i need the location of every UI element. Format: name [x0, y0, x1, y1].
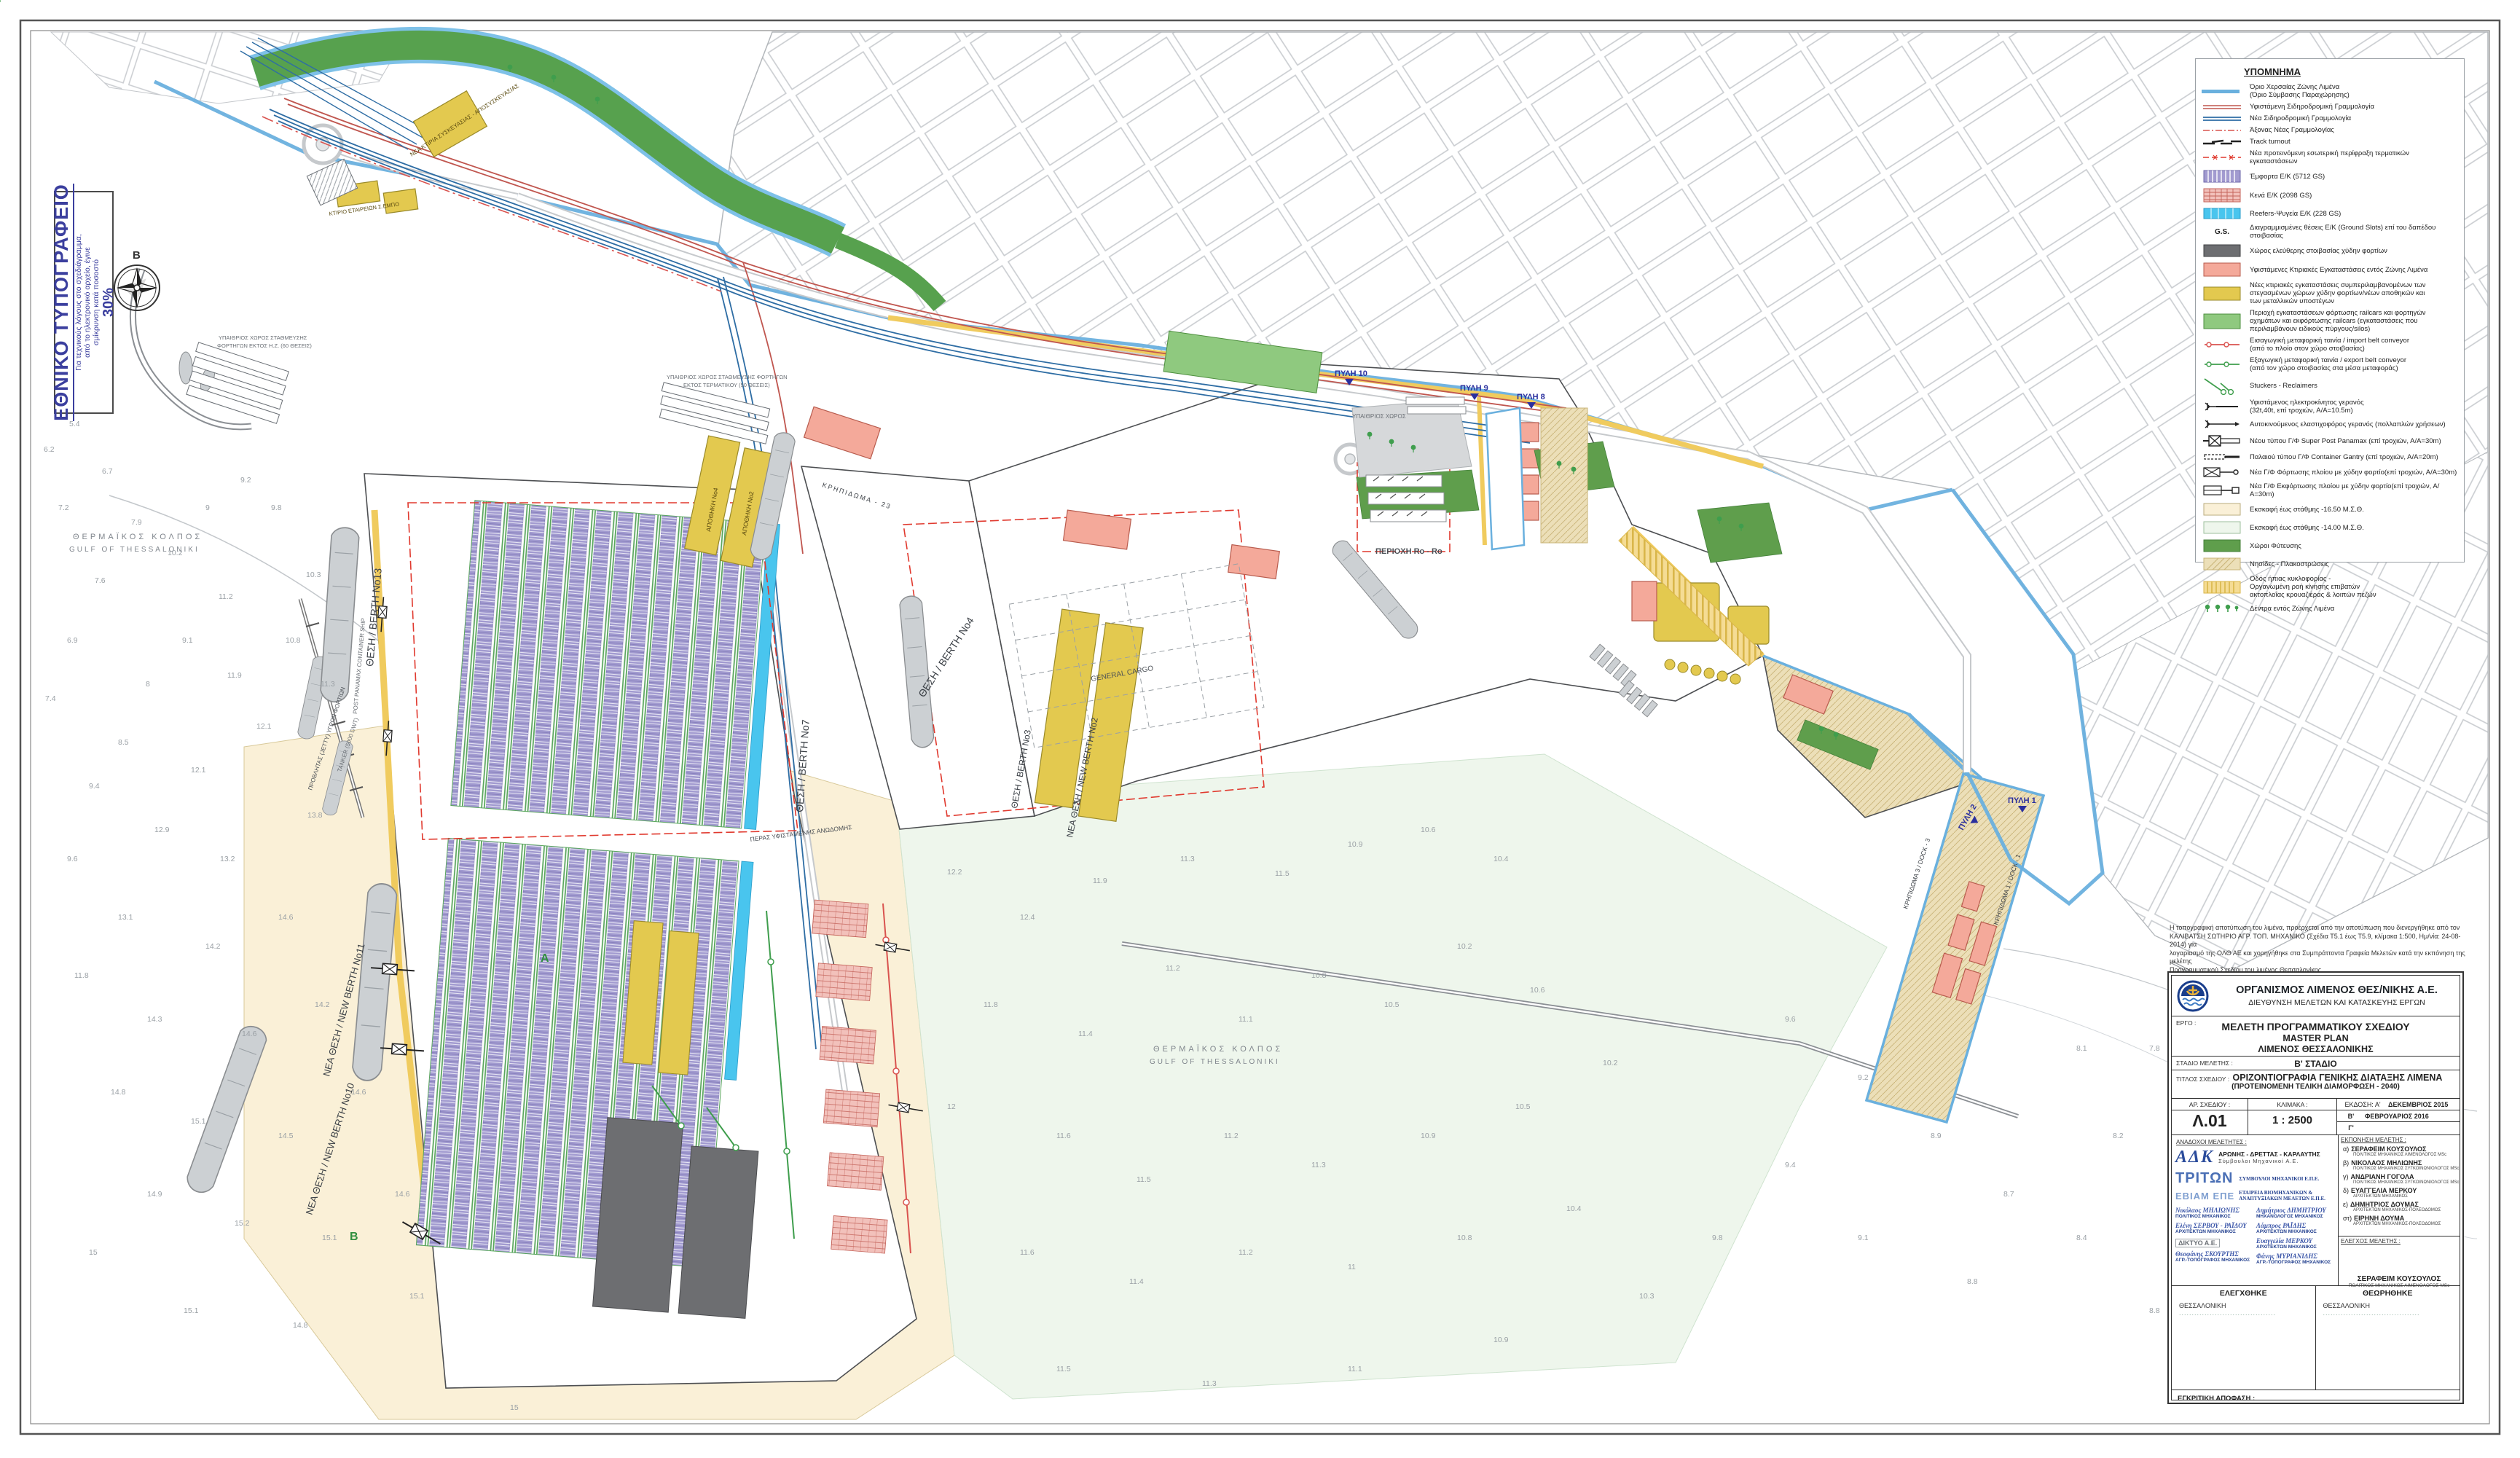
legend-item-label: Reefers-Ψυγεία Ε/Κ (228 GS) — [2250, 210, 2341, 218]
national-printing-office-note: ΕΘΝΙΚΟ ΤΥΠΟΓΡΑΦΕΙΟ Για τεχνικούς λόγους … — [54, 191, 114, 414]
depth-sounding: 5.4 — [69, 420, 80, 428]
drawing-title-line2: (ΠΡΟΤΕΙΝΟΜΕΝΗ ΤΕΛΙΚΗ ΔΙΑΜΟΡΦΩΣΗ - 2040) — [2172, 1083, 2460, 1091]
depth-sounding: 11.8 — [74, 971, 89, 980]
depth-sounding: 11.1 — [1239, 1015, 1253, 1024]
port-authority-logo — [2172, 980, 2214, 1012]
survey-note-line: ΚΑΛΙΒΑΤΣΗ ΣΩΤΗΡΙΟ ΑΓΡ. ΤΟΠ. ΜΗΧΑΝΙΚΟ (Σχ… — [2170, 933, 2467, 949]
area-label-open-yard: ΥΠΑΙΘΡΙΟΣ ΧΩΡΟΣ — [1352, 413, 1406, 420]
depth-sounding: 12.2 — [947, 868, 962, 877]
legend-item-label: Διαγραμμισμένες θέσεις Ε/Κ (Ground Slots… — [2250, 224, 2458, 240]
legend-swatch-ek_empty — [2202, 187, 2242, 203]
depth-sounding: 15 — [510, 1403, 519, 1412]
depth-sounding: 11.9 — [227, 671, 242, 680]
depth-sounding: 9.2 — [240, 476, 251, 485]
depth-sounding: 14.2 — [315, 1000, 330, 1009]
author-entry: β)ΝΙΚΟΛΑΟΣ ΜΗΛΙΩΝΗΣΠΟΛΙΤΙΚΟΣ ΜΗΧΑΝΙΚΟΣ Σ… — [2343, 1159, 2460, 1171]
depth-sounding: 15.1 — [322, 1234, 337, 1242]
depth-sounding: 8 — [146, 680, 150, 689]
check-cell: ΕΛΕΓΧΟΣ ΜΕΛΕΤΗΣ : ΣΕΡΑΦΕΙΜ ΚΟΥΣΟΥΛΟΣ ΠΟΛ… — [2339, 1236, 2460, 1285]
legend-swatch-exc1400 — [2202, 520, 2242, 535]
depth-sounding: 15.1 — [409, 1292, 425, 1301]
drawing-title-line1: ΟΡΙΖΟΝΤΙΟΓΡΑΦΙΑ ΓΕΝΙΚΗΣ ΔΙΑΤΑΞΗΣ ΛΙΜΕΝΑ — [2215, 1073, 2460, 1083]
section-marker-a: Α — [541, 952, 549, 965]
depth-sounding: 14.9 — [147, 1190, 162, 1199]
depth-sounding: 7.9 — [131, 518, 142, 527]
legend-item: Υφιστάμενες Κτιριακές Εγκαταστάσεις εντό… — [2202, 262, 2458, 278]
legend-item: Stuckers - Reclaimers — [2202, 376, 2458, 395]
legend-swatch-axis_new — [2202, 128, 2242, 133]
checker-role: ΠΟΛΙΤΙΚΟΣ ΜΗΧΑΝΙΚΟΣ ΛΙΜΕΝΟΛΟΓΟΣ MSc — [2339, 1283, 2460, 1288]
legend-swatch-bulk_load — [2202, 466, 2242, 479]
consultant-signature: Νικόλαος ΜΗΛΙΩΝΗΣΠΟΛΙΤΙΚΟΣ ΜΗΧΑΝΙΚΟΣ — [2175, 1207, 2255, 1219]
stage-label: ΣΤΑΔΙΟ ΜΕΛΕΤΗΣ : — [2176, 1059, 2233, 1067]
depth-sounding: 10.2 — [1457, 942, 1472, 951]
depth-sounding: 11 — [1348, 1263, 1356, 1271]
port-master-plan-map: Β ΘΕΡΜΑΪΚΟΣ ΚΟΛΠΟΣGULF OF THESSALONIKIΘΕ… — [0, 0, 2520, 1454]
legend-item-label: Εισαγωγική μεταφορική ταινία / import be… — [2250, 337, 2409, 353]
topographic-survey-note: Η τοπογραφική αποτύπωση του λιμένα, προέ… — [2170, 924, 2467, 974]
legend-swatch-gantry_old — [2202, 452, 2242, 462]
checker-name: ΣΕΡΑΦΕΙΜ ΚΟΥΣΟΥΛΟΣ — [2339, 1275, 2460, 1283]
drawing-number: Λ.01 — [2172, 1111, 2248, 1131]
depth-sounding: 11.5 — [1056, 1365, 1071, 1373]
check-label: ΕΛΕΓΧΟΣ ΜΕΛΕΤΗΣ : — [2341, 1238, 2460, 1245]
depth-sounding: 9.2 — [1858, 1073, 1869, 1082]
legend-item: Νέα Σιδηροδρομική Γραμμολογία — [2202, 114, 2458, 122]
checked-cell: ΕΛΕΓΧΘΗΚΕ ΘΕΣΣΑΛΟΝΙΚΗ ..................… — [2172, 1286, 2316, 1390]
water-label-gulf-center-gr: ΘΕΡΜΑΪΚΟΣ ΚΟΛΠΟΣ — [1153, 1045, 1283, 1054]
legend-swatch-conv_exp — [2202, 361, 2242, 368]
survey-note-line: Η τοπογραφική αποτύπωση του λιμένα, προέ… — [2170, 924, 2467, 933]
scale-label: ΚΛΙΜΑΚΑ : — [2248, 1101, 2336, 1110]
drawing-sheet: Β ΘΕΡΜΑΪΚΟΣ ΚΟΛΠΟΣGULF OF THESSALONIKIΘΕ… — [0, 0, 2520, 1454]
depth-sounding: 11.8 — [984, 1000, 998, 1009]
legend-item: Οδός ήπιας κυκλοφορίας -Οργανωμένη ροή κ… — [2202, 575, 2458, 599]
depth-sounding: 9.4 — [89, 782, 100, 791]
depth-sounding: 15.1 — [184, 1306, 199, 1315]
firm-eviam: ΕΒΙΑΜ ΕΠΕ ΕΤΑΙΡΕΙΑ ΒΙΟΜΗΧΑΝΙΚΩΝ & ΑΝΑΠΤΥ… — [2175, 1190, 2336, 1202]
legend-item: Εκσκαφή έως στάθμης -14.00 Μ.Σ.Θ. — [2202, 520, 2458, 535]
triton-sub: ΣΥΜΒΟΥΛΟΙ ΜΗΧΑΝΙΚΟΙ Ε.Π.Ε. — [2239, 1176, 2319, 1182]
legend-swatch-bulk_unload — [2202, 484, 2242, 497]
legend-item-label: Δέντρα εντός Ζώνης Λιμένα — [2250, 605, 2334, 613]
authors-label: ΕΚΠΟΝΗΣΗ ΜΕΛΕΤΗΣ : — [2341, 1137, 2460, 1143]
depth-sounding: 15 — [89, 1248, 98, 1257]
depth-sounding: 10.6 — [1530, 986, 1545, 995]
legend-item-label: Νέα Γ/Φ Εκφόρτωσης πλοίου με χύδην φορτί… — [2250, 482, 2458, 498]
consultant-signature: Ευαγγελία ΜΕΡΚΟΥΑΡΧΙΤΕΚΤΩΝ ΜΗΧΑΝΙΚΟΣ — [2256, 1237, 2336, 1250]
depth-sounding: 14.3 — [147, 1015, 162, 1024]
legend-item-label: Παλαιού τύπου Γ/Φ Container Gantry (επί … — [2250, 453, 2438, 461]
title-block: ΟΡΓΑΝΙΣΜΟΣ ΛΙΜΕΝΟΣ ΘΕΣ/ΝΙΚΗΣ Α.Ε. ΔΙΕΥΘΥ… — [2167, 971, 2464, 1404]
printing-note-line3: σμίκρυνση κατά ποσοστό — [92, 259, 101, 345]
depth-sounding: 9.8 — [1712, 1234, 1723, 1242]
firm-adk: ΑΔΚ ΑΡΩΝΗΣ - ΔΡΕΤΤΑΣ - ΚΑΡΛΑΥΤΗΣ Σύμβουλ… — [2175, 1148, 2336, 1167]
depth-sounding: 15.1 — [191, 1117, 206, 1126]
legend-swatch-crane_e — [2202, 401, 2242, 412]
depth-sounding: 9 — [205, 503, 210, 512]
depth-sounding: 11.3 — [1202, 1379, 1217, 1388]
approved-city: ΘΕΣΣΑΛΟΝΙΚΗ — [2323, 1302, 2370, 1309]
legend-item: Νέα προτεινόμενη εσωτερική περίφραξη τερ… — [2202, 149, 2458, 165]
author-entry: ε)ΔΗΜΗΤΡΙΟΣ ΔΟΥΜΑΣΑΡΧΙΤΕΚΤΩΝ ΜΗΧΑΝΙΚΟΣ-Π… — [2343, 1201, 2460, 1212]
checked-title: ΕΛΕΓΧΘΗΚΕ — [2172, 1289, 2315, 1298]
depth-sounding: 14.8 — [293, 1321, 308, 1330]
legend-item: Περιοχή εγκαταστάσεων φόρτωσης railcars … — [2202, 309, 2458, 333]
depth-sounding: 7.8 — [2149, 1044, 2160, 1053]
legend-item: Νέες κτιριακές εγκαταστάσεις συμπεριλαμβ… — [2202, 281, 2458, 305]
legend-item-label: Νέα Σιδηροδρομική Γραμμολογία — [2250, 114, 2351, 122]
depth-sounding: 11.5 — [1275, 869, 1290, 878]
depth-sounding: 10.9 — [1421, 1132, 1436, 1140]
depth-sounding: 9.4 — [1785, 1161, 1796, 1169]
depth-sounding: 14.8 — [111, 1088, 126, 1097]
legend-item-label: Νέα Γ/Φ Φόρτωσης πλοίου με χύδην φορτίο(… — [2250, 469, 2457, 477]
water-label-gulf-west-gr: ΘΕΡΜΑΪΚΟΣ ΚΟΛΠΟΣ — [73, 533, 203, 541]
depth-sounding: 7.4 — [45, 694, 56, 703]
depth-sounding: 8.7 — [2003, 1190, 2014, 1199]
legend-item-label: Χώρος ελεύθερης στοιβασίας χύδην φορτίων — [2250, 247, 2387, 255]
project-line2: MASTER PLAN — [2172, 1033, 2460, 1043]
depth-sounding: 8.2 — [2113, 1132, 2124, 1140]
legend-item: Track turnout — [2202, 138, 2458, 146]
revision-row: Γ' — [2337, 1122, 2460, 1133]
legend-item: Εξαγωγική μεταφορική ταινία / export bel… — [2202, 356, 2458, 372]
triton-logo: ΤΡΙΤΩΝ — [2175, 1170, 2233, 1187]
adk-logo: ΑΔΚ — [2175, 1148, 2214, 1167]
depth-sounding: 11.3 — [1311, 1161, 1326, 1169]
depth-sounding: 8.8 — [1967, 1277, 1978, 1286]
legend-swatch-railcar — [2202, 313, 2242, 330]
depth-sounding: 12.9 — [154, 826, 170, 834]
legend-swatch-soft_road — [2202, 580, 2242, 595]
depth-sounding: 12.4 — [1020, 913, 1035, 922]
gate-label: ΠΥΛΗ 8 — [1517, 393, 1545, 401]
revision-row: ΕΚΔΟΣΗ: Α'ΔΕΚΕΜΒΡΙΟΣ 2015 — [2337, 1099, 2460, 1110]
depth-sounding: 8.5 — [118, 738, 129, 747]
depth-sounding: 13.2 — [220, 855, 235, 863]
depth-sounding: 12.1 — [256, 722, 272, 731]
parking-label-1b: ΦΟΡΤΗΓΩΝ ΕΚΤΟΣ Η.Ζ. (60 ΘΕΣΕΙΣ) — [217, 342, 312, 349]
legend-swatch-bulk — [2202, 243, 2242, 258]
depth-sounding: 10.8 — [286, 636, 301, 645]
legend-item: Παλαιού τύπου Γ/Φ Container Gantry (επί … — [2202, 452, 2458, 462]
eviam-logo: ΕΒΙΑΜ ΕΠΕ — [2175, 1191, 2234, 1202]
depth-sounding: 11.1 — [1348, 1365, 1362, 1373]
legend-swatch-bld_exist — [2202, 262, 2242, 278]
depth-sounding: 14.2 — [205, 942, 221, 951]
legend-item: Κενά Ε/Κ (2098 GS) — [2202, 187, 2458, 203]
legend-swatch-exc1650 — [2202, 502, 2242, 517]
legend-item-label: Κενά Ε/Κ (2098 GS) — [2250, 192, 2312, 200]
approved-dots: ...................................... — [2323, 1309, 2420, 1317]
depth-sounding: 7.6 — [95, 576, 106, 585]
adk-sub: Σύμβουλοι Μηχανικοί Α.Ε. — [2218, 1158, 2320, 1164]
legend-item-label: Αυτοκινούμενος ελαστιχοφόρος γερανός (πο… — [2250, 420, 2446, 428]
legend-item: G.S.Διαγραμμισμένες θέσεις Ε/Κ (Ground S… — [2202, 224, 2458, 240]
legend-item: Νησίδες - Πλακοστρώσεις — [2202, 557, 2458, 571]
printing-office-title: ΕΘΝΙΚΟ ΤΥΠΟΓΡΑΦΕΙΟ — [50, 184, 74, 420]
gate-label: ΠΥΛΗ 9 — [1460, 384, 1488, 393]
org-dept: ΔΙΕΥΘΥΝΣΗ ΜΕΛΕΤΩΝ ΚΑΙ ΚΑΤΑΣΚΕΥΗΣ ΕΡΓΩΝ — [2214, 998, 2460, 1007]
depth-sounding: 8.9 — [1931, 1132, 1942, 1140]
depth-sounding: 11.6 — [1056, 1132, 1071, 1140]
parking-label-2a: ΥΠΑΙΘΡΙΟΣ ΧΩΡΟΣ ΣΤΑΘΜΕΥΣΗΣ ΦΟΡΤΗΓΩΝ — [667, 374, 787, 380]
area-label-roro: ΠΕΡΙΟΧΗ Ro - Ro — [1375, 547, 1442, 556]
stage-value: Β' ΣΤΑΔΙΟ — [2294, 1057, 2336, 1069]
legend-item: Αυτοκινούμενος ελαστιχοφόρος γερανός (πο… — [2202, 418, 2458, 430]
depth-sounding: 14.5 — [278, 1132, 294, 1140]
legend-item: Υφιστάμενη Σιδηροδρομική Γραμμολογία — [2202, 103, 2458, 111]
depth-sounding: 15.2 — [235, 1219, 250, 1228]
depth-sounding: 10.6 — [1421, 826, 1436, 834]
legend-swatch-crane_m — [2202, 418, 2242, 430]
legend-item-label: Υφιστάμενη Σιδηροδρομική Γραμμολογία — [2250, 103, 2374, 111]
legend-swatch-gs: G.S. — [2202, 228, 2242, 236]
legend-item-label: Νέου τύπου Γ/Φ Super Post Panamax (επί τ… — [2250, 437, 2441, 445]
legend-swatch-plant — [2202, 538, 2242, 553]
legend-item: Εκσκαφή έως στάθμης -16.50 Μ.Σ.Θ. — [2202, 502, 2458, 517]
author-entry: α)ΣΕΡΑΦΕΙΜ ΚΟΥΣΟΥΛΟΣΠΟΛΙΤΙΚΟΣ ΜΗΧΑΝΙΚΟΣ … — [2343, 1145, 2460, 1157]
depth-sounding: 8.1 — [2076, 1044, 2087, 1053]
legend-title: ΥΠΟΜΝΗΜΑ — [2244, 66, 2458, 77]
legend-swatch-bld_new — [2202, 286, 2242, 302]
depth-sounding: 11.6 — [1020, 1248, 1035, 1257]
depth-sounding: 8.8 — [2149, 1306, 2160, 1315]
depth-sounding: 6.2 — [44, 445, 55, 454]
depth-sounding: 8.4 — [2076, 1234, 2087, 1242]
legend-swatch-conv_imp — [2202, 341, 2242, 348]
legend-item: Έμφορτα Ε/Κ (5712 GS) — [2202, 169, 2458, 184]
printing-note-line1: Για τεχνικούς λόγους στο σχεδιάγραμμα, — [74, 234, 83, 371]
legend-item: Νέα Γ/Φ Φόρτωσης πλοίου με χύδην φορτίο(… — [2202, 466, 2458, 479]
consultant-signature: Λάμπρος ΡΑΪΔΗΣΑΡΧΙΤΕΚΤΩΝ ΜΗΧΑΝΙΚΟΣ — [2256, 1222, 2336, 1234]
scale-value: 1 : 2500 — [2248, 1114, 2336, 1126]
adk-name: ΑΡΩΝΗΣ - ΔΡΕΤΤΑΣ - ΚΑΡΛΑΥΤΗΣ — [2218, 1151, 2320, 1158]
depth-sounding: 11.4 — [1129, 1277, 1144, 1286]
depth-sounding: 10.4 — [1566, 1204, 1582, 1213]
depth-sounding: 11.2 — [1239, 1248, 1253, 1257]
legend-item: Νέου τύπου Γ/Φ Super Post Panamax (επί τ… — [2202, 434, 2458, 448]
legend-item: Εισαγωγική μεταφορική ταινία / import be… — [2202, 337, 2458, 353]
depth-sounding: 7.2 — [58, 503, 69, 512]
legend-item-label: Υφιστάμενες Κτιριακές Εγκαταστάσεις εντό… — [2250, 266, 2427, 274]
project-line1: ΜΕΛΕΤΗ ΠΡΟΓΡΑΜΜΑΤΙΚΟΥ ΣΧΕΔΙΟΥ — [2172, 1021, 2460, 1032]
depth-sounding: 11.9 — [1093, 877, 1107, 885]
eviam-sub2: ΑΝΑΠΤΥΞΙΑΚΩΝ ΜΕΛΕΤΩΝ Ε.Π.Ε. — [2239, 1196, 2325, 1202]
depth-sounding: 9.6 — [1785, 1015, 1796, 1024]
approved-cell: ΘΕΩΡΗΘΗΚΕ ΘΕΣΣΑΛΟΝΙΚΗ ..................… — [2316, 1286, 2460, 1390]
water-indent — [1486, 408, 1524, 549]
depth-sounding: 11.2 — [1166, 964, 1180, 973]
legend-item: Reefers-Ψυγεία Ε/Κ (228 GS) — [2202, 207, 2458, 220]
legend-item-label: Άξονας Νέας Γραμμολογίας — [2250, 126, 2334, 134]
legend-swatch-trees — [2202, 603, 2242, 614]
legend-item-label: Νέες κτιριακές εγκαταστάσεις συμπεριλαμβ… — [2250, 281, 2425, 305]
checked-dots: ...................................... — [2179, 1309, 2276, 1317]
depth-sounding: 14.6 — [278, 913, 294, 922]
depth-sounding: 12.1 — [191, 766, 206, 775]
legend-item-label: Οδός ήπιας κυκλοφορίας -Οργανωμένη ροή κ… — [2250, 575, 2376, 599]
legend-item: Χώροι Φύτευσης — [2202, 538, 2458, 553]
author-entry: γ)ΑΝΔΡΙΑΝΗ ΓΟΓΟΛΑΠΟΛΙΤΙΚΟΣ ΜΗΧΑΝΙΚΟΣ ΣΥΓ… — [2343, 1173, 2460, 1185]
legend-swatch-stackers — [2202, 376, 2242, 395]
consultants-label: ΑΝΑΔΟΧΟΙ ΜΕΛΕΤΗΤΕΣ : — [2176, 1139, 2336, 1145]
diktyo-logo: ΔΙΚΤΥΟ Α.Ε. — [2175, 1239, 2220, 1247]
legend-item-label: Εξαγωγική μεταφορική ταινία / export bel… — [2250, 356, 2406, 372]
depth-sounding: 11.2 — [1224, 1132, 1239, 1140]
legend-item-label: Εκσκαφή έως στάθμης -14.00 Μ.Σ.Θ. — [2250, 524, 2364, 532]
legend-item: Όριο Χερσαίας Ζώνης Λιμένα(Όριο Σύμβασης… — [2202, 83, 2458, 99]
approved-title: ΘΕΩΡΗΘΗΚΕ — [2316, 1289, 2460, 1298]
consultant-signature: Φάνης ΜΥΡΙΑΝΙΔΗΣΑΓΡ.-ΤΟΠΟΓΡΑΦΟΣ ΜΗΧΑΝΙΚΟ… — [2256, 1253, 2336, 1265]
project-line3: ΛΙΜΕΝΟΣ ΘΕΣΣΑΛΟΝΙΚΗΣ — [2172, 1044, 2460, 1054]
depth-sounding: 10.9 — [1348, 840, 1363, 849]
depth-sounding: 11.3 — [321, 680, 335, 689]
consultant-signature: Ελένη ΣΕΡΒΟΥ - ΡΑΪΔΟΥΑΡΧΙΤΕΚΤΩΝ ΜΗΧΑΝΙΚΟ… — [2175, 1222, 2255, 1234]
depth-sounding: 9.1 — [1858, 1234, 1869, 1242]
legend-swatch-limit — [2202, 86, 2242, 96]
legend-item-label: Νέα προτεινόμενη εσωτερική περίφραξη τερ… — [2250, 149, 2458, 165]
depth-sounding: 14.6 — [242, 1030, 257, 1038]
gate-label: ΠΥΛΗ 10 — [1335, 369, 1367, 378]
consultants-cell: ΑΝΑΔΟΧΟΙ ΜΕΛΕΤΗΤΕΣ : ΑΔΚ ΑΡΩΝΗΣ - ΔΡΕΤΤΑ… — [2172, 1135, 2339, 1285]
depth-sounding: 10.3 — [306, 571, 321, 579]
printing-note-line2: από το ηλεκτρονικό αρχείο, έγινε — [83, 247, 92, 358]
legend-item-label: Εκσκαφή έως στάθμης -16.50 Μ.Σ.Θ. — [2250, 506, 2364, 514]
depth-sounding: 9.8 — [271, 503, 282, 512]
author-entry: δ)ΕΥΑΓΓΕΛΙΑ ΜΕΡΚΟΥΑΡΧΙΤΕΚΤΩΝ ΜΗΧΑΝΙΚΟΣ — [2343, 1187, 2460, 1199]
authors-cell: ΕΚΠΟΝΗΣΗ ΜΕΛΕΤΗΣ : α)ΣΕΡΑΦΕΙΜ ΚΟΥΣΟΥΛΟΣΠ… — [2339, 1135, 2460, 1285]
depth-sounding: 10.9 — [1493, 1336, 1509, 1344]
firm-triton: ΤΡΙΤΩΝ ΣΥΜΒΟΥΛΟΙ ΜΗΧΑΝΙΚΟΙ Ε.Π.Ε. — [2175, 1170, 2336, 1187]
gate-label: ΠΥΛΗ 1 — [2008, 796, 2036, 805]
section-marker-b: Β — [350, 1231, 358, 1243]
legend-item-label: Υφιστάμενος ηλεκτροκίνητος γερανός(32t,4… — [2250, 399, 2364, 415]
approval-decision-label: ΕΓΚΡΙΤΙΚΗ ΑΠΟΦΑΣΗ : — [2172, 1390, 2460, 1408]
revision-row: Β'ΦΕΒΡΟΥΑΡΙΟΣ 2016 — [2337, 1110, 2460, 1122]
legend-swatch-spp — [2202, 434, 2242, 448]
legend: ΥΠΟΜΝΗΜΑ Όριο Χερσαίας Ζώνης Λιμένα(Όριο… — [2195, 58, 2465, 563]
legend-item: Νέα Γ/Φ Εκφόρτωσης πλοίου με χύδην φορτί… — [2202, 482, 2458, 498]
depth-sounding: 10.3 — [1639, 1292, 1655, 1301]
depth-sounding: 12 — [947, 1102, 956, 1111]
depth-sounding: 10.4 — [1493, 855, 1509, 863]
depth-sounding: 10.8 — [1311, 971, 1327, 980]
depth-sounding: 10.2 — [1603, 1059, 1618, 1067]
drawing-title-label: ΤΙΤΛΟΣ ΣΧΕΔΙΟΥ : — [2176, 1075, 2229, 1083]
legend-item-label: Track turnout — [2250, 138, 2291, 146]
legend-item: Δέντρα εντός Ζώνης Λιμένα — [2202, 603, 2458, 614]
depth-sounding: 11.4 — [1078, 1030, 1093, 1038]
legend-item-label: Χώροι Φύτευσης — [2250, 542, 2301, 550]
depth-sounding: 9.1 — [182, 636, 193, 645]
legend-item: Χώρος ελεύθερης στοιβασίας χύδην φορτίων — [2202, 243, 2458, 258]
survey-note-line: λογαριασμό της ΟΛΘ ΑΕ και χορηγήθηκε στα… — [2170, 949, 2467, 966]
depth-sounding: 11.3 — [1180, 855, 1195, 863]
legend-item: Άξονας Νέας Γραμμολογίας — [2202, 126, 2458, 134]
plaza-hatch — [1541, 408, 1587, 543]
depth-sounding: 10.5 — [1515, 1102, 1531, 1111]
legend-swatch-turnout — [2202, 138, 2242, 146]
printing-note-percent: 30% — [101, 288, 117, 317]
depth-sounding: 11.5 — [1137, 1175, 1151, 1184]
parking-label-1a: ΥΠΑΙΘΡΙΟΣ ΧΩΡΟΣ ΣΤΑΘΜΕΥΣΗΣ — [219, 334, 307, 341]
consultant-signature: Θεοφάνης ΣΚΟΥΡΤΗΣΑΓΡ.-ΤΟΠΟΓΡΑΦΟΣ ΜΗΧΑΝΙΚ… — [2175, 1250, 2255, 1263]
checked-city: ΘΕΣΣΑΛΟΝΙΚΗ — [2179, 1302, 2226, 1309]
compass-north-label: Β — [133, 249, 141, 262]
project-label: ΕΡΓΟ : — [2176, 1019, 2196, 1027]
depth-sounding: 14.6 — [395, 1190, 410, 1199]
legend-swatch-rail_new — [2202, 115, 2242, 122]
depth-sounding: 13.1 — [118, 913, 133, 922]
depth-sounding: 6.9 — [67, 636, 78, 645]
drawing-number-label: ΑΡ. ΣΧΕΔΙΟΥ : — [2172, 1101, 2248, 1110]
legend-item-label: Όριο Χερσαίας Ζώνης Λιμένα(Όριο Σύμβασης… — [2250, 83, 2350, 99]
depth-sounding: 6.7 — [102, 467, 113, 476]
depth-sounding: 9.6 — [67, 855, 78, 863]
legend-item: Υφιστάμενος ηλεκτροκίνητος γερανός(32t,4… — [2202, 399, 2458, 415]
legend-swatch-ek_full — [2202, 169, 2242, 184]
depth-sounding: 11.2 — [219, 592, 233, 601]
water-label-gulf-center-en: GULF OF THESSALONIKI — [1150, 1058, 1280, 1066]
legend-swatch-reefer — [2202, 207, 2242, 220]
legend-swatch-islands — [2202, 557, 2242, 571]
depth-sounding: 10.2 — [168, 549, 183, 557]
legend-item-label: Stuckers - Reclaimers — [2250, 382, 2317, 390]
depth-sounding: 10.5 — [1384, 1000, 1400, 1009]
legend-swatch-fence — [2202, 154, 2242, 161]
consultant-signature: Δημήτριος ΔΗΜΗΤΡΙΟΥΜΗΧΑΝΟΛΟΓΟΣ ΜΗΧΑΝΙΚΟΣ — [2256, 1207, 2336, 1219]
author-entry: στ)ΕΙΡΗΝΗ ΔΟΥΜΑΑΡΧΙΤΕΚΤΩΝ ΜΗΧΑΝΙΚΟΣ-ΠΟΛΕ… — [2343, 1215, 2460, 1226]
legend-item-label: Έμφορτα Ε/Κ (5712 GS) — [2250, 173, 2325, 181]
depth-sounding: 10.8 — [1457, 1234, 1472, 1242]
eviam-sub1: ΕΤΑΙΡΕΙΑ ΒΙΟΜΗΧΑΝΙΚΩΝ & — [2239, 1190, 2325, 1196]
legend-item-label: Περιοχή εγκαταστάσεων φόρτωσης railcars … — [2250, 309, 2426, 333]
legend-item-label: Νησίδες - Πλακοστρώσεις — [2250, 560, 2329, 568]
depth-sounding: 14.6 — [351, 1088, 366, 1097]
depth-sounding: 13.8 — [307, 811, 323, 820]
legend-swatch-rail_exist — [2202, 103, 2242, 111]
org-name: ΟΡΓΑΝΙΣΜΟΣ ΛΙΜΕΝΟΣ ΘΕΣ/ΝΙΚΗΣ Α.Ε. — [2214, 984, 2460, 996]
parking-label-2b: ΕΚΤΟΣ ΤΕΡΜΑΤΙΚΟΥ (50 ΘΕΣΕΙΣ) — [683, 382, 770, 388]
